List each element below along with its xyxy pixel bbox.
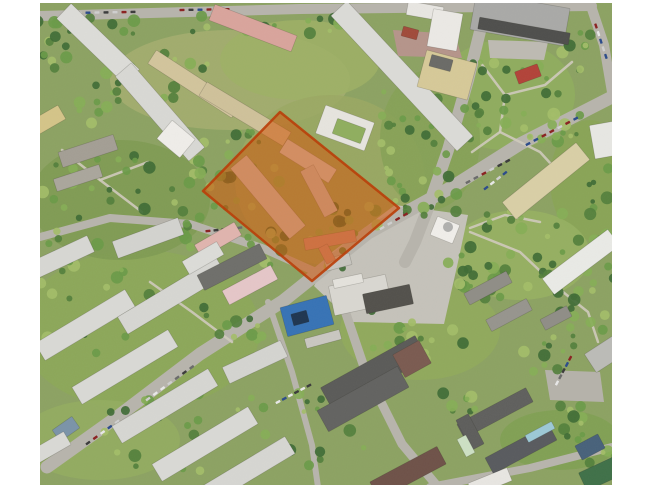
photo-grain [40,3,612,485]
photo-area [20,0,632,487]
aerial-photo [0,0,650,487]
screenshot-root [0,0,650,487]
